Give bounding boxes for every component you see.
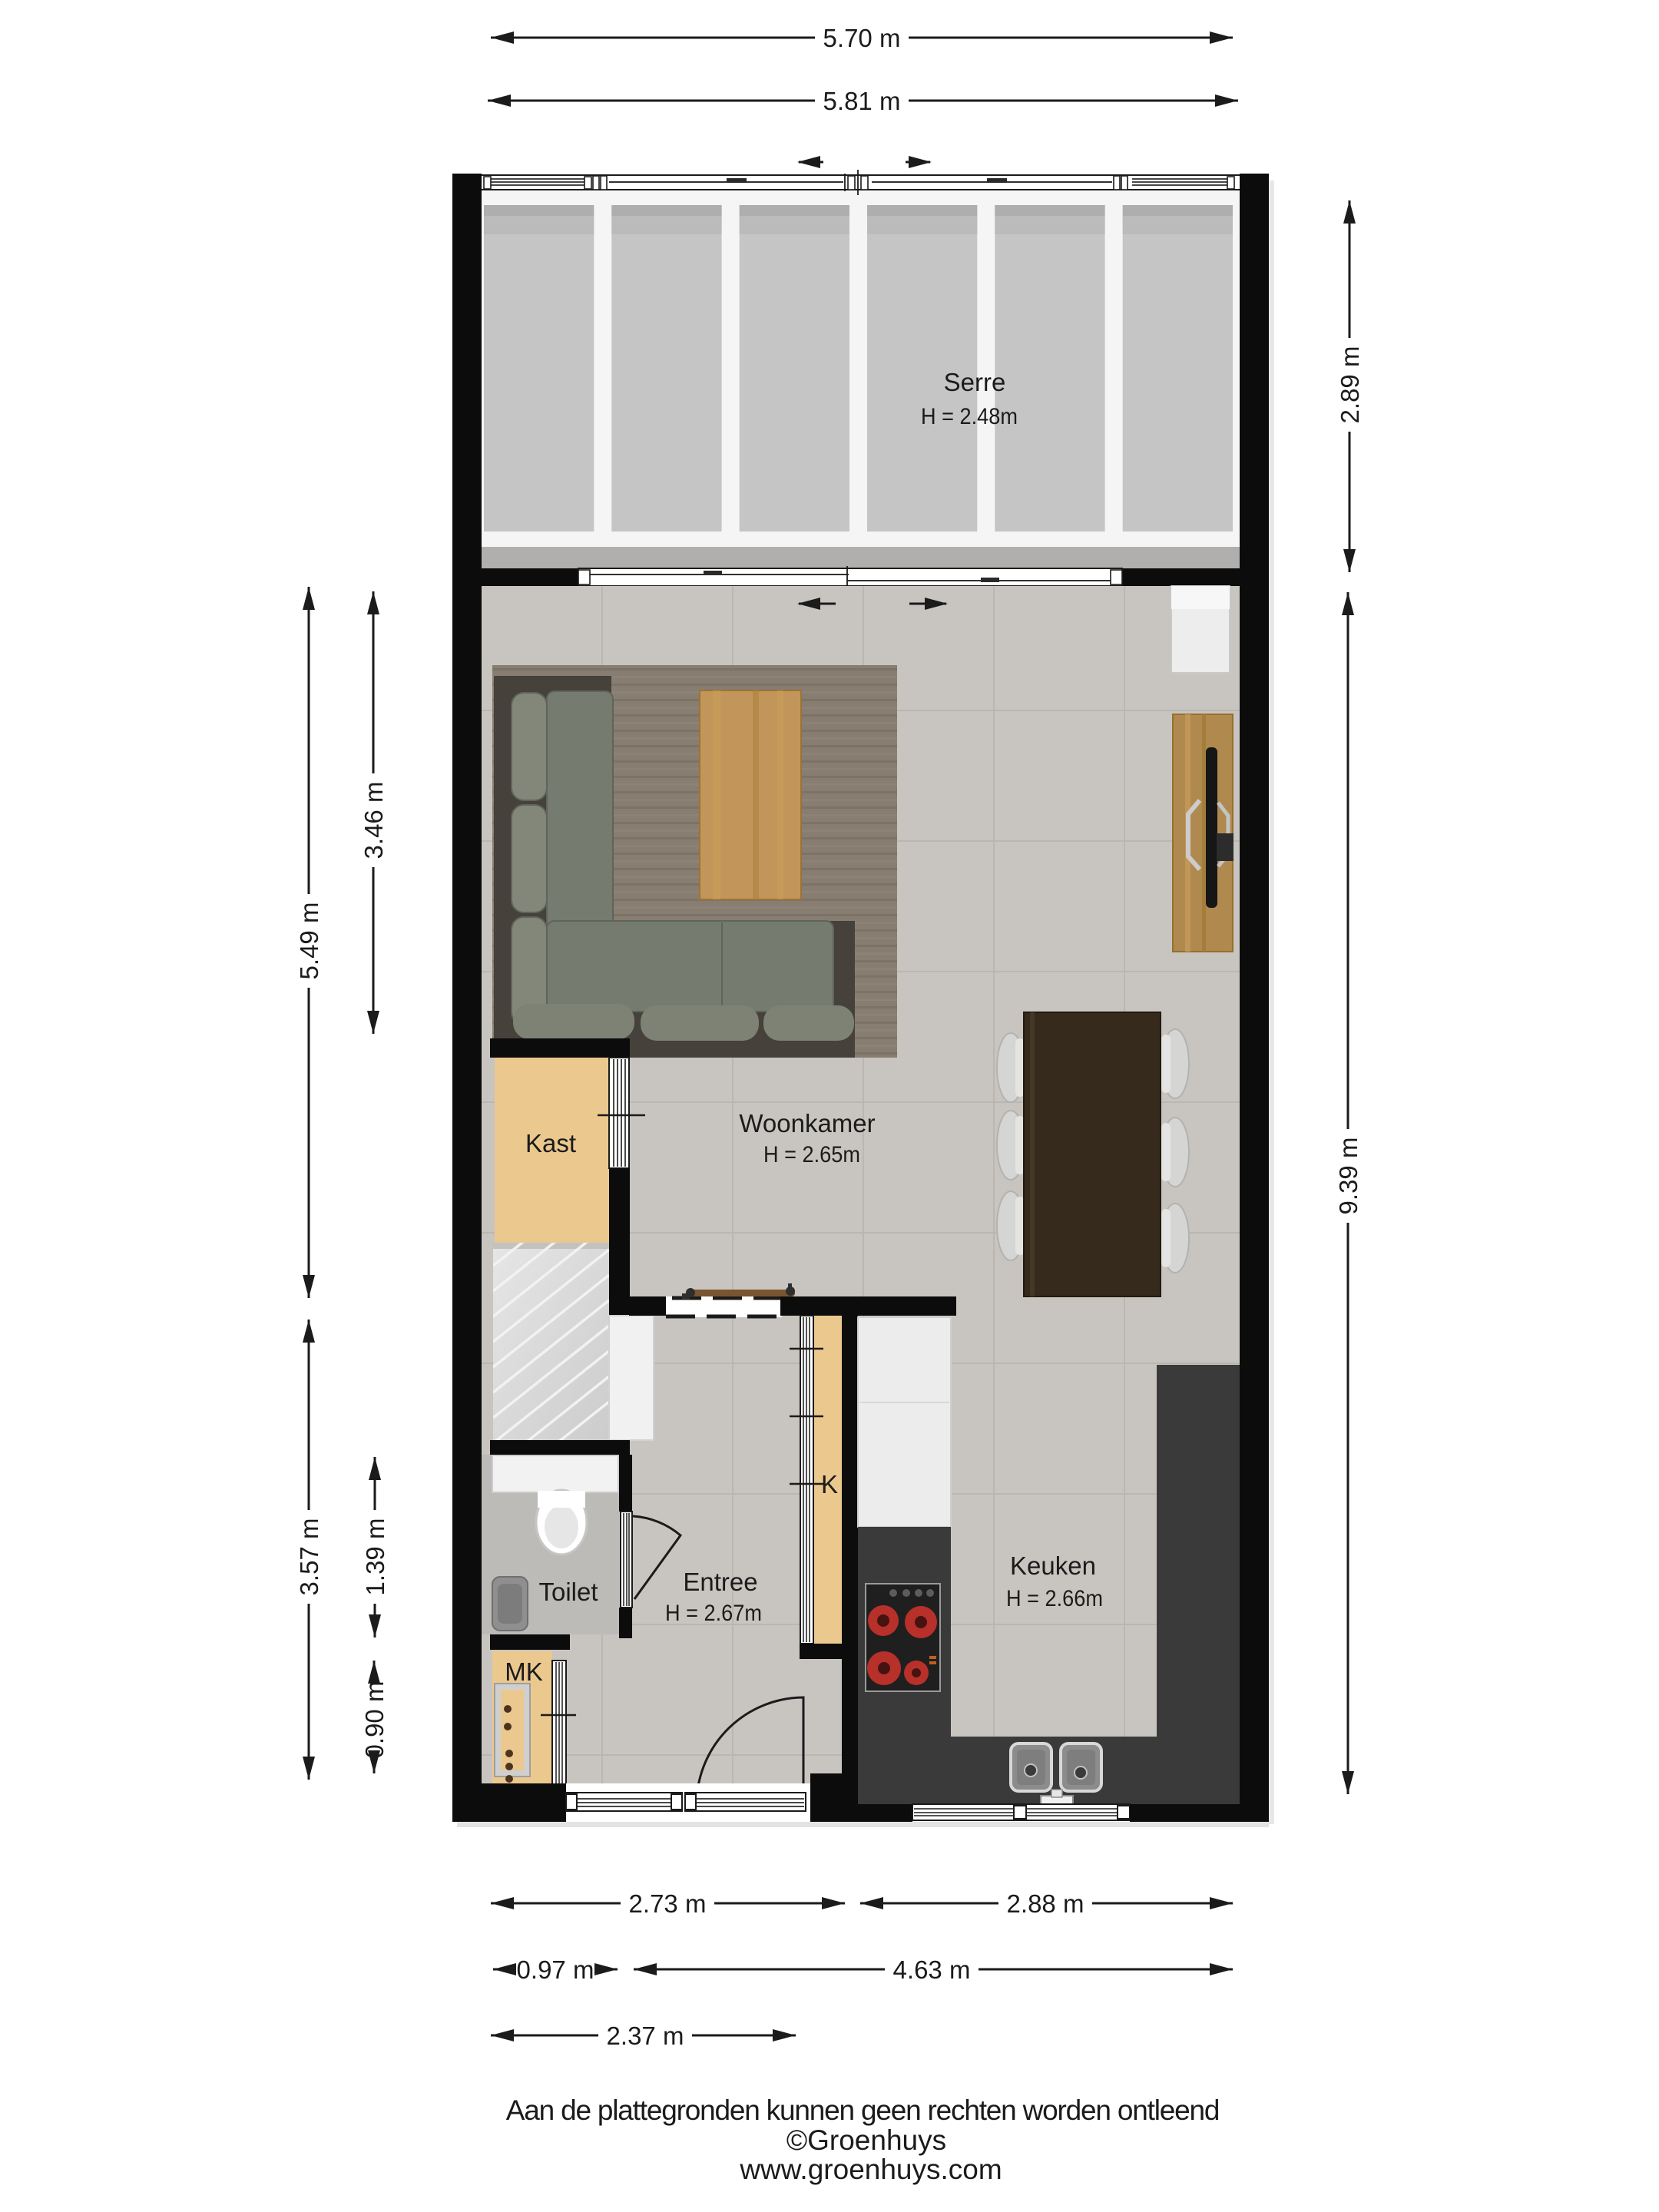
svg-text:0.97 m: 0.97 m [517,1955,594,1984]
svg-text:H = 2.67m: H = 2.67m [665,1601,762,1626]
svg-text:Kast: Kast [525,1129,576,1157]
svg-text:H = 2.48m: H = 2.48m [921,404,1018,429]
svg-text:5.81 m: 5.81 m [823,87,901,115]
svg-text:4.63 m: 4.63 m [893,1955,971,1984]
svg-text:Aan de plattegronden kunnen ge: Aan de plattegronden kunnen geen rechten… [506,2094,1219,2126]
svg-text:www.groenhuys.com: www.groenhuys.com [739,2154,1002,2185]
svg-text:1.39 m: 1.39 m [361,1518,389,1596]
svg-text:0.90 m: 0.90 m [360,1681,389,1759]
svg-text:3.57 m: 3.57 m [295,1518,323,1596]
svg-text:Keuken: Keuken [1010,1551,1096,1580]
svg-text:5.70 m: 5.70 m [823,24,901,52]
svg-text:2.73 m: 2.73 m [629,1889,707,1918]
svg-text:2.88 m: 2.88 m [1007,1889,1084,1918]
svg-text:©Groenhuys: ©Groenhuys [786,2124,946,2156]
svg-text:Woonkamer: Woonkamer [739,1109,875,1137]
svg-text:Entree: Entree [683,1568,757,1596]
svg-text:MK: MK [505,1657,543,1686]
svg-text:Toilet: Toilet [538,1578,598,1606]
svg-text:2.89 m: 2.89 m [1336,346,1364,424]
svg-text:3.46 m: 3.46 m [359,782,388,859]
svg-text:9.39 m: 9.39 m [1334,1137,1363,1215]
svg-text:5.49 m: 5.49 m [295,902,323,980]
svg-text:H = 2.65m: H = 2.65m [763,1142,860,1167]
svg-text:K: K [821,1470,838,1498]
svg-text:2.37 m: 2.37 m [607,2022,684,2050]
svg-text:Serre: Serre [944,368,1006,396]
svg-text:H = 2.66m: H = 2.66m [1006,1586,1103,1611]
